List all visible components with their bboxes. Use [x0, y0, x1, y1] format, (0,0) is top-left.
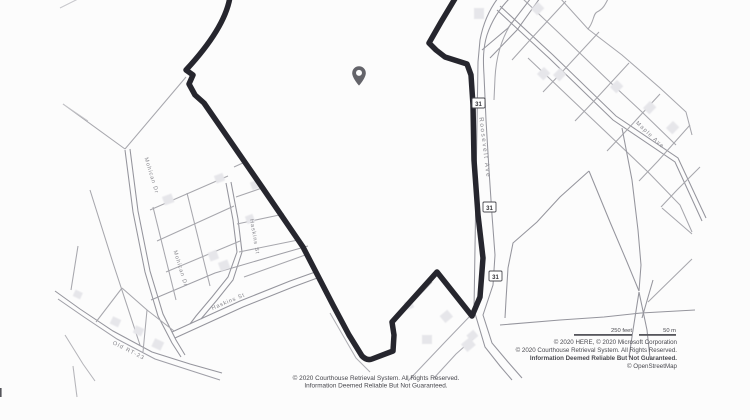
svg-text:31: 31	[475, 102, 482, 108]
svg-text:© 2020 HERE, © 2020 Microsoft: © 2020 HERE, © 2020 Microsoft Corporatio…	[554, 339, 678, 346]
svg-text:31: 31	[492, 275, 499, 281]
svg-text:Information Deemed Reliable Bu: Information Deemed Reliable But Not Guar…	[304, 383, 447, 390]
svg-text:© 2020 Courthouse Retrieval Sy: © 2020 Courthouse Retrieval System. All …	[516, 347, 678, 354]
svg-text:© 2020 Courthouse Retrieval Sy: © 2020 Courthouse Retrieval System. All …	[293, 374, 460, 382]
svg-text:250 feet: 250 feet	[611, 328, 632, 334]
svg-text:Information Deemed Reliable Bu: Information Deemed Reliable But Not Guar…	[530, 355, 677, 362]
svg-text:© OpenStreetMap: © OpenStreetMap	[627, 363, 678, 370]
svg-text:31: 31	[486, 206, 493, 212]
svg-text:50 m: 50 m	[663, 328, 676, 334]
